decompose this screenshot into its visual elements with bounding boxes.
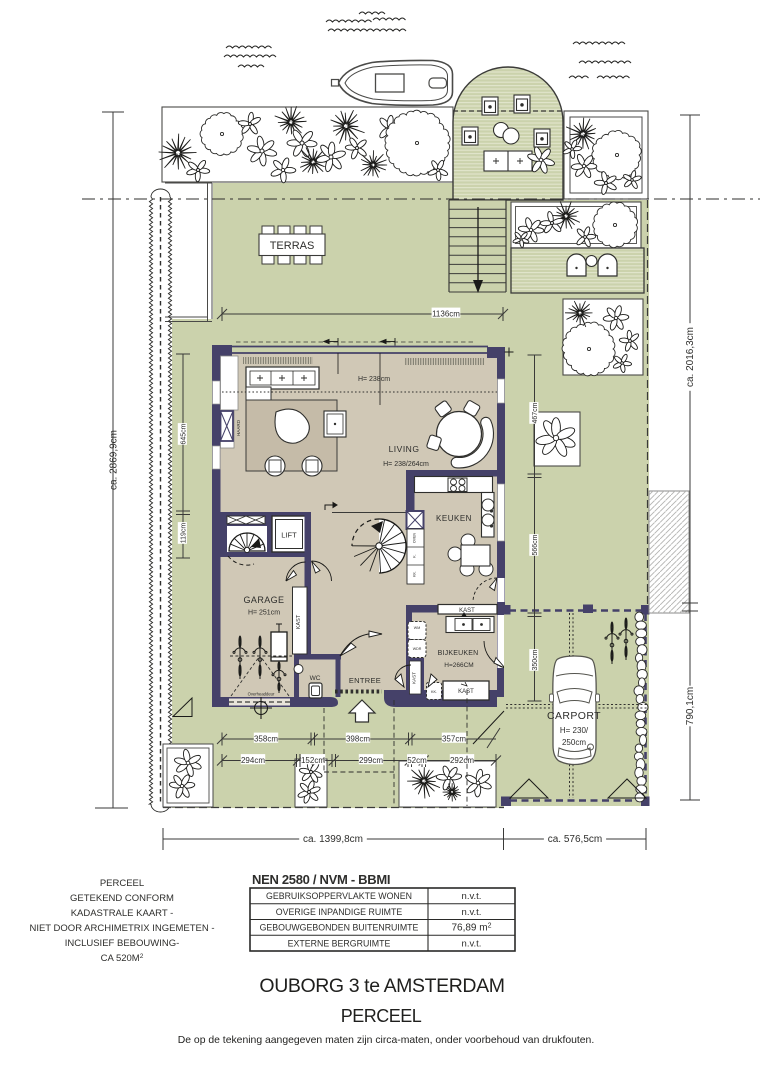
svg-text:CA 520M2: CA 520M2 (101, 953, 144, 965)
svg-text:52cm: 52cm (407, 756, 427, 765)
svg-text:EXTERNE BERGRUIMTE: EXTERNE BERGRUIMTE (288, 938, 391, 948)
svg-text:299cm: 299cm (359, 756, 383, 765)
svg-text:566cm: 566cm (532, 534, 539, 555)
svg-text:ca. 576,5cm: ca. 576,5cm (548, 834, 602, 845)
svg-text:152cm: 152cm (301, 756, 325, 765)
svg-text:467cm: 467cm (532, 402, 539, 423)
svg-text:LIVING: LIVING (389, 444, 420, 454)
svg-text:GEBOUWGEBONDEN BUITENRUIMTE: GEBOUWGEBONDEN BUITENRUIMTE (260, 923, 419, 933)
svg-text:PERCEEL: PERCEEL (100, 878, 144, 889)
svg-text:LIFT: LIFT (281, 531, 297, 540)
svg-text:ca. 1399,8cm: ca. 1399,8cm (303, 834, 363, 845)
svg-text:BIJKEUKEN: BIJKEUKEN (438, 650, 479, 657)
svg-text:KK.: KK. (413, 571, 417, 577)
svg-text:KEUKEN: KEUKEN (436, 514, 472, 523)
svg-text:INCLUSIEF BEBOUWING-: INCLUSIEF BEBOUWING- (65, 938, 180, 949)
svg-text:n.v.t.: n.v.t. (462, 891, 482, 902)
svg-text:294cm: 294cm (241, 756, 265, 765)
svg-text:357cm: 357cm (442, 735, 466, 744)
svg-text:645cm: 645cm (181, 423, 188, 444)
svg-text:250cm: 250cm (562, 738, 586, 747)
svg-text:KADASTRALE KAART -: KADASTRALE KAART - (71, 908, 174, 919)
svg-text:Overheaddeur: Overheaddeur (248, 692, 275, 697)
svg-text:K.: K. (413, 554, 417, 557)
svg-text:WM: WM (414, 626, 420, 630)
svg-text:GETEKEND CONFORM: GETEKEND CONFORM (70, 893, 174, 904)
svg-text:398cm: 398cm (346, 735, 370, 744)
svg-text:n.v.t.: n.v.t. (462, 907, 482, 918)
svg-text:CARPORT: CARPORT (547, 710, 601, 722)
svg-text:OUBORG 3 te AMSTERDAM: OUBORG 3 te AMSTERDAM (259, 975, 504, 997)
svg-text:WC: WC (310, 675, 321, 682)
svg-text:1136cm: 1136cm (432, 310, 460, 319)
svg-text:GEBRUIKSOPPERVLAKTE WONEN: GEBRUIKSOPPERVLAKTE WONEN (266, 891, 412, 901)
svg-text:350cm: 350cm (532, 649, 539, 670)
svg-text:KAST: KAST (458, 689, 474, 695)
svg-text:ca. 2869,9cm: ca. 2869,9cm (109, 430, 120, 490)
svg-text:OVEN: OVEN (413, 533, 417, 544)
svg-text:119cm: 119cm (181, 523, 188, 544)
svg-text:NIET DOOR ARCHIMETRIX INGEMETE: NIET DOOR ARCHIMETRIX INGEMETEN - (29, 923, 214, 934)
svg-text:H= 230/: H= 230/ (560, 726, 589, 735)
svg-text:GARAGE: GARAGE (244, 595, 285, 605)
svg-text:WDR: WDR (413, 647, 422, 651)
svg-text:OVERIGE INPANDIGE RUIMTE: OVERIGE INPANDIGE RUIMTE (276, 907, 403, 917)
svg-text:358cm: 358cm (254, 735, 278, 744)
svg-text:H= 251cm: H= 251cm (248, 610, 280, 617)
svg-text:76,89 m2: 76,89 m2 (451, 922, 491, 934)
svg-text:ENTREE: ENTREE (349, 676, 381, 685)
svg-text:TERRAS: TERRAS (270, 240, 315, 252)
svg-text:PERCEEL: PERCEEL (341, 1006, 422, 1026)
svg-text:KAST: KAST (459, 608, 475, 614)
svg-text:KAST: KAST (296, 614, 302, 629)
svg-text:KAST: KAST (412, 672, 417, 684)
svg-text:292cm: 292cm (450, 756, 474, 765)
svg-text:HAARD: HAARD (236, 419, 241, 436)
svg-text:n.v.t.: n.v.t. (462, 938, 482, 949)
svg-text:H= 238cm: H= 238cm (358, 376, 390, 383)
svg-text:KK.: KK. (431, 690, 437, 694)
svg-text:H= 238/264cm: H= 238/264cm (383, 461, 429, 468)
svg-text:790,1cm: 790,1cm (685, 687, 696, 725)
svg-text:De op de tekening aangegeven m: De op de tekening aangegeven maten zijn … (178, 1035, 594, 1046)
svg-text:ca. 2016,3cm: ca. 2016,3cm (685, 327, 696, 387)
svg-text:H=266CM: H=266CM (444, 662, 473, 669)
svg-text:NEN 2580 / NVM - BBMI: NEN 2580 / NVM - BBMI (252, 872, 390, 887)
